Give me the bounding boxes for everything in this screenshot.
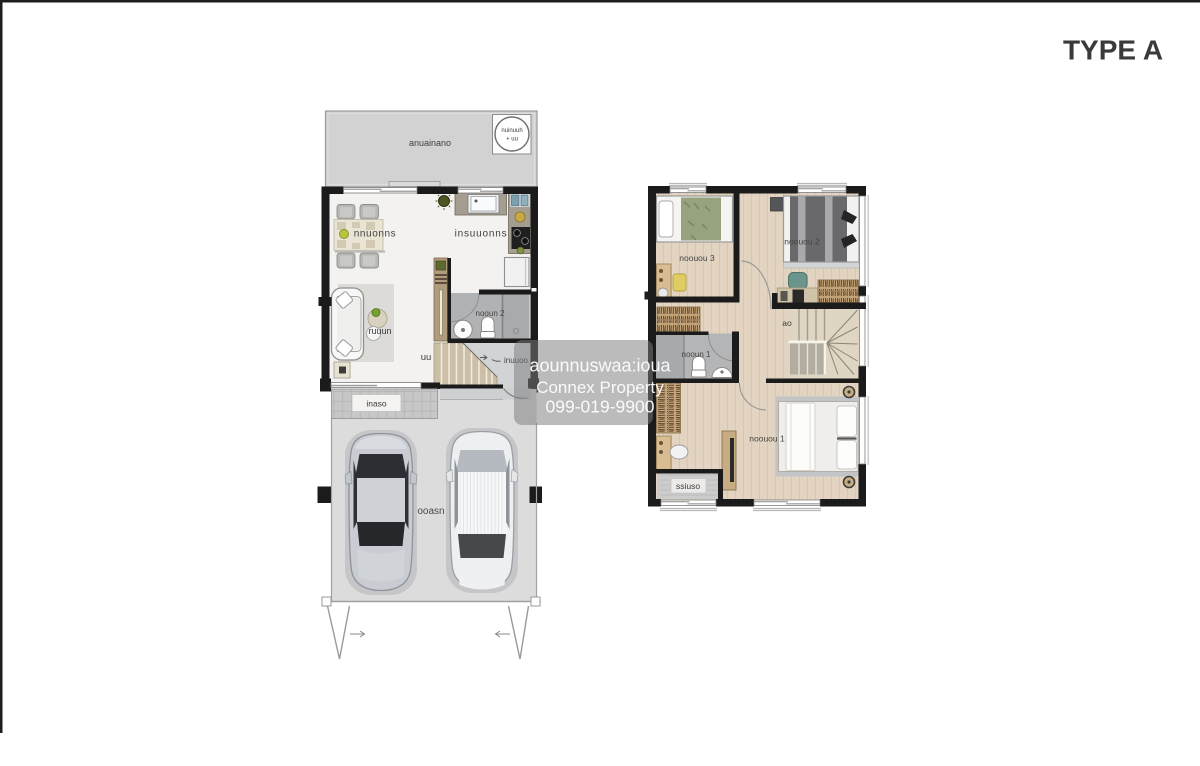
svg-text:insuuonns: insuuonns — [455, 229, 508, 240]
svg-text:099-019-9900: 099-019-9900 — [546, 397, 655, 417]
svg-text:ruuun: ruuun — [368, 326, 391, 336]
svg-text:inaso: inaso — [366, 399, 387, 409]
svg-text:nooun 2: nooun 2 — [476, 309, 505, 318]
svg-text:Connex Property: Connex Property — [536, 378, 664, 397]
svg-text:+ uu: + uu — [506, 137, 518, 143]
svg-text:noouou 3: noouou 3 — [679, 253, 715, 263]
svg-text:ooasn: ooasn — [417, 506, 444, 517]
svg-text:anuainano: anuainano — [409, 138, 451, 148]
svg-text:noouou 1: noouou 1 — [749, 434, 785, 444]
svg-text:aounnuswaa:ioua: aounnuswaa:ioua — [529, 356, 671, 376]
svg-text:ssiuso: ssiuso — [676, 481, 700, 491]
svg-text:TYPE A: TYPE A — [1063, 35, 1163, 66]
svg-text:ao: ao — [782, 318, 792, 328]
svg-text:nuinuuh: nuinuuh — [501, 128, 522, 134]
svg-text:noouou 2: noouou 2 — [784, 237, 820, 247]
svg-text:nooun 1: nooun 1 — [682, 350, 711, 359]
svg-text:uu: uu — [421, 352, 432, 363]
svg-text:nnuonns: nnuonns — [354, 229, 397, 240]
